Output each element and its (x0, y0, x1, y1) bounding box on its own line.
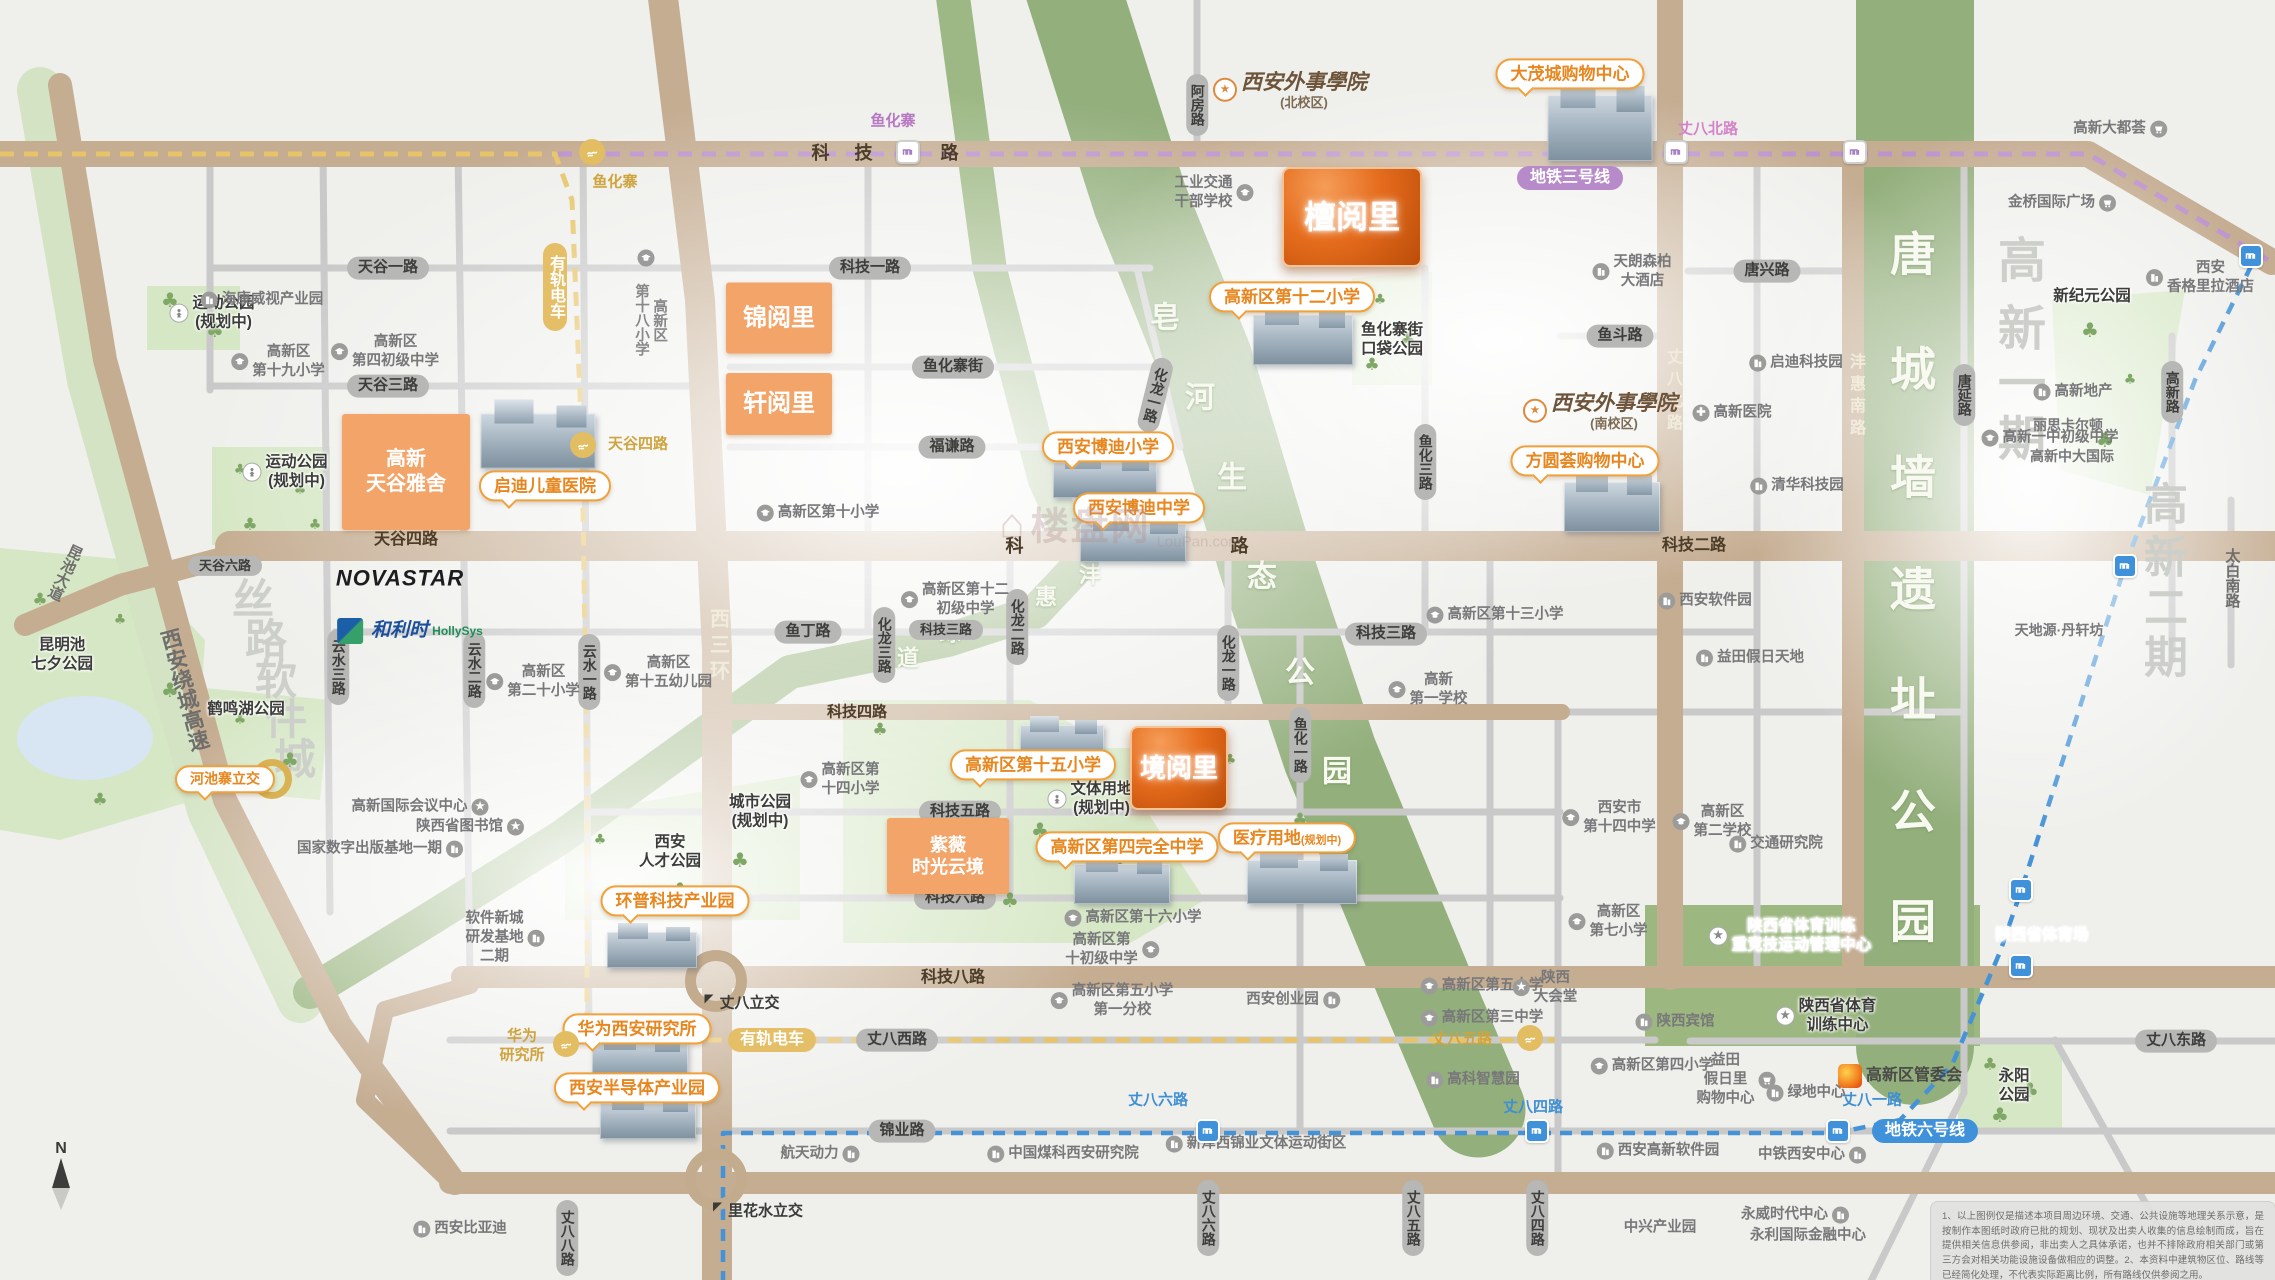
bigtext-gx1-2: 新 (1998, 300, 2046, 360)
starw-icon: ★ (1776, 1007, 1795, 1026)
station-yuhuazhai-metro: 鱼化寨 (870, 113, 915, 132)
road-keji3lu-east: 科技三路 (1345, 623, 1427, 646)
poi-qidi-childrens-hospital[interactable]: 启迪儿童医院 (479, 470, 611, 501)
poi-qidi-tech-park: 启迪科技园 (1749, 354, 1843, 373)
project-tianguyashe[interactable]: 高新天谷雅舍 (342, 414, 470, 530)
bldg-icon (1749, 355, 1766, 372)
poi-shanxi-dahuitang: ★陕西大会堂 (1513, 969, 1578, 1007)
bldg-huanpu (607, 932, 697, 968)
tree-icon: ♣ (309, 517, 322, 533)
poi-hechizhai-interchange[interactable]: 河池寨立交 (175, 765, 275, 793)
school-icon (331, 344, 348, 361)
road-zhangbadonglu: 丈八东路 (2135, 1030, 2217, 1053)
m6-station-zhangba1 (1826, 1119, 1850, 1143)
poi-huawei-institute[interactable]: 华为西安研究所 (563, 1013, 712, 1044)
road-afanglu: 阿房路 (1186, 74, 1208, 136)
road-kejixilu: 科 技 西 路 (811, 142, 968, 165)
park-sports2: 运动公园(规划中) (242, 453, 327, 492)
poi-gaoxin-admin: 高新区管委会 (1838, 1064, 1962, 1088)
park-pocket: 鱼化寨街口袋公园 (1361, 321, 1423, 360)
road-hualong2lu: 化龙二路 (1006, 589, 1028, 665)
bldg-bodi-middle (1080, 524, 1186, 562)
tram-station-zhangba5 (1517, 1025, 1543, 1051)
m6-station-1 (2239, 244, 2263, 268)
tram-badge-v: 有轨电车 (543, 243, 567, 331)
poi-school4: 高新区第四小学 (1591, 1057, 1714, 1076)
school-icon (901, 592, 918, 609)
school-icon (1569, 914, 1586, 931)
bldg-icon (1323, 992, 1340, 1009)
tree-icon: ♣ (594, 832, 607, 848)
bldg-icon (1832, 1207, 1849, 1224)
station-zhangba1-metro: 丈八一路 (1842, 1092, 1902, 1111)
hollysys-logo-icon (337, 618, 363, 644)
poi-xinzexi-street: 新泽西锦业文体运动街区 (1166, 1135, 1347, 1154)
m3-station-fenghuinan (1843, 140, 1867, 164)
bldg-icon (1166, 1136, 1183, 1153)
park-yongyang: 永阳公园 (1998, 1067, 2029, 1106)
bigtext-gx1-1: 高 (1998, 232, 2046, 292)
band-yuan2: 园 (1322, 753, 1352, 791)
tram-station-tiangu4 (570, 432, 596, 458)
station-tiangu4-tram: 天谷四路 (608, 436, 668, 455)
school-icon (1142, 942, 1159, 959)
poi-huanpu-tech-park[interactable]: 环普科技产业园 (601, 885, 750, 916)
m3-station-zhangbabei (1664, 140, 1688, 164)
poi-shanxi-library: 陕西省图书馆★ (416, 818, 524, 837)
m3-station-yuhuazhai (896, 140, 920, 164)
station-huawei-tram: 华为研究所 (499, 1027, 544, 1065)
poi-intl-conference: 高新国际会议中心★ (352, 798, 489, 817)
poi-damaocheng-mall[interactable]: 大茂城购物中心 (1496, 58, 1645, 89)
poi-hangtian-dongli: 航天动力 (781, 1145, 860, 1164)
poi-xian-middle14: 西安市第十四中学 (1562, 799, 1656, 837)
school-icon (1051, 993, 1068, 1010)
poi-zhongxing-park: 中兴产业园 (1624, 1219, 1697, 1238)
school-icon (1421, 978, 1438, 995)
poi-yongli-finance: 永利国际金融中心 (1750, 1227, 1866, 1246)
tree-icon: ♣ (872, 720, 887, 740)
bldg-icon (1658, 593, 1675, 610)
poi-semiconductor-park[interactable]: 西安半导体产业园 (554, 1072, 720, 1103)
poi-school14: 高新区第十四小学 (801, 761, 880, 799)
starw-icon: ★ (1709, 927, 1728, 946)
band-zhi: 址 (1890, 671, 1936, 729)
tree-icon: ♣ (2124, 372, 2137, 388)
poi-fangyuanhui-mall[interactable]: 方圆荟购物中心 (1511, 445, 1660, 476)
tree-icon: ♣ (2081, 318, 2099, 342)
road-zhangbabeilu-pink: 丈八北路 (1678, 121, 1738, 140)
road-zhangba4lu: 丈八四路 (1526, 1180, 1548, 1256)
road-keji3lu-west: 科技三路 (909, 620, 983, 640)
poi-shanxi-binguan: 陕西宾馆 (1636, 1013, 1715, 1032)
poi-ruanjianxincheng: 软件新城研发基地二期 (466, 910, 545, 967)
poi-gaoxin-dadu: 高新大都荟 (2073, 120, 2167, 139)
school-icon (231, 354, 248, 371)
poi-school10: 高新区第十小学 (757, 504, 880, 523)
band-gong2: 公 (1285, 654, 1315, 692)
m6-station-4 (2009, 954, 2033, 978)
poi-xian-byd: 西安比亚迪 (413, 1220, 507, 1239)
bldg-icon (413, 1221, 430, 1238)
bldg-fangyuanhui (1564, 482, 1660, 532)
station-zhangba4-metro: 丈八四路 (1503, 1099, 1563, 1118)
logo-hollysys: 和利时HollySys (337, 618, 483, 644)
poi-xian-chuangye-park: 西安创业园 (1246, 991, 1340, 1010)
road-keji8lu: 科技八路 (921, 968, 985, 988)
poi-school15-bubble[interactable]: 高新区第十五小学 (950, 749, 1116, 780)
poi-waishixueyuan-south: ★西安外事學院(南校区) (1523, 390, 1677, 433)
poi-school18: 高新区第十八小学 (632, 284, 668, 357)
project-jingyueli2[interactable]: 境阅里 (1130, 726, 1228, 810)
poi-jiaotong-institute: 交通研究院 (1729, 835, 1823, 854)
star-icon: ★ (1513, 980, 1530, 997)
poi-zhongtie-center: 中铁西安中心 (1758, 1146, 1866, 1165)
poi-gaoke-zhihui: 高科智慧园 (1426, 1071, 1520, 1090)
poi-tsinghua-tech-park: 清华科技园 (1750, 477, 1844, 496)
med-icon: ✚ (1693, 405, 1710, 422)
tree-icon: ♣ (731, 848, 749, 872)
band-cheng: 城 (1890, 341, 1936, 399)
bldg-icon (1696, 650, 1713, 667)
school-icon (638, 250, 655, 267)
logo-novastar: NOVASTAR (336, 564, 464, 592)
star-icon: ★ (472, 799, 489, 816)
tree-icon: ♣ (242, 515, 257, 535)
road-tiangu4lu-on-road: 天谷四路 (374, 530, 438, 550)
school-icon (1982, 430, 1999, 447)
poi-kindergarten15: 高新区第十五幼儿园 (604, 654, 712, 692)
park-talent: 西安人才公园 (639, 833, 701, 872)
poi-digital-publish-base: 国家数字出版基地一期 (297, 840, 463, 859)
road-zhangba8lu: 丈八八路 (556, 1200, 578, 1276)
poi-hikvision-park: 海康威视产业园 (201, 291, 324, 310)
school-icon (1673, 814, 1690, 831)
band-tang: 唐 (1890, 226, 1936, 284)
icon-school18 (638, 250, 659, 267)
bldg-icon (2034, 384, 2051, 401)
project-xuanyueli[interactable]: 轩阅里 (726, 373, 832, 435)
band-sheng: 生 (1217, 459, 1247, 497)
bldg-icon (1767, 1085, 1784, 1102)
school-icon (1427, 607, 1444, 624)
poi-gaoxin-first-school: 高新第一学校 (1389, 671, 1468, 709)
bldg-icon (201, 292, 218, 309)
compass-n-label: N (55, 1140, 67, 1158)
project-ziweishiguang[interactable]: 紫薇时光云境 (887, 818, 1009, 894)
metro6-badge: 地铁六号线 (1872, 1119, 1978, 1143)
map-canvas[interactable]: ⌂ 楼盘网 LouPan.com 1、以上图例仅是描述本项目周边环境、交通、公共… (0, 0, 2275, 1280)
poi-school19: 高新区第十九小学 (231, 343, 325, 381)
road-tiangu1lu: 天谷一路 (347, 257, 429, 280)
project-jinyueli[interactable]: 锦阅里 (726, 283, 832, 354)
bldg-icon (1597, 1143, 1614, 1160)
poi-yongwei-center: 永威时代中心 (1741, 1206, 1849, 1225)
star-icon: ★ (1213, 78, 1237, 102)
poi-gaoxin-hospital: ✚高新医院 (1693, 404, 1772, 423)
road-keji4lu: 科技四路 (827, 704, 887, 723)
band-zao: 皂 (1150, 299, 1180, 337)
poi-waishixueyuan-north: ★西安外事學院(北校区) (1213, 69, 1367, 112)
park-city: 城市公园(规划中) (729, 793, 791, 832)
road-yuhuazhaijie: 鱼化寨街 (912, 356, 994, 379)
road-fenghuinanlu: 沣惠南路 (1845, 353, 1865, 441)
band-he: 河 (1185, 379, 1215, 417)
poi-school4-complete[interactable]: 高新区第四完全中学 (1036, 831, 1219, 862)
band-yi: 遗 (1890, 561, 1936, 619)
poi-sports-training: ★陕西省体育训练重竞技运动管理中心 (1709, 917, 1872, 956)
band-feng: 沣 (1079, 561, 1101, 589)
road-zhangba6lu: 丈八六路 (1197, 1180, 1219, 1256)
bldg-icon (1849, 1147, 1866, 1164)
m6-station-zhangba6 (1196, 1119, 1220, 1143)
star-icon: ★ (507, 819, 524, 836)
school-icon (486, 674, 503, 691)
poi-school13: 高新区第十三小学 (1427, 606, 1564, 625)
park-kunmingchi: 昆明池七夕公园 (31, 636, 93, 675)
poi-school16: 高新区第十六小学 (1065, 909, 1202, 928)
bldg-semicon (600, 1103, 696, 1139)
poi-meikeyuan: 中国煤科西安研究院 (987, 1145, 1139, 1164)
road-keji1lu: 科技一路 (829, 257, 911, 280)
poi-middle10: 高新区第十初级中学 (1065, 931, 1159, 969)
band-hui: 惠 (1035, 583, 1057, 611)
school-icon (801, 772, 818, 789)
poi-middle4: 高新区第四初级中学 (331, 333, 439, 371)
bldg-icon (987, 1146, 1004, 1163)
poi-sports-center: ★陕西省体育训练中心 (1776, 997, 1877, 1036)
road-tiangu6lu: 天谷六路 (188, 556, 262, 576)
school-icon (1591, 1058, 1608, 1075)
road-tiangu3lu: 天谷三路 (347, 375, 429, 398)
project-tanyueli[interactable]: 檀阅里 (1282, 167, 1422, 267)
band-yuan: 园 (1890, 893, 1936, 951)
school-icon (1389, 682, 1406, 699)
school-icon (604, 665, 621, 682)
tree-icon: ♣ (1374, 292, 1387, 308)
shop-icon (2099, 195, 2116, 212)
bldg-icon (1750, 478, 1767, 495)
bigtext-gx2-3: 二 (2144, 581, 2188, 636)
park-newera: 新纪元公园 (2053, 286, 2131, 305)
person-icon (169, 304, 188, 323)
poi-greenland-center: 绿地中心 (1767, 1084, 1846, 1103)
compass-needle-north (52, 1158, 70, 1188)
star-icon: ★ (1523, 399, 1547, 423)
poi-yitian-mall: 益田假日里购物中心 (1697, 1052, 1776, 1109)
road-zhangba5lu: 丈八五路 (1402, 1180, 1424, 1256)
poi-school7: 高新区第七小学 (1569, 903, 1648, 941)
road-tangxinglu: 唐兴路 (1733, 260, 1800, 283)
band-gong: 公 (1890, 783, 1936, 841)
poi-xian-software-park: 西安软件园 (1658, 592, 1752, 611)
flag-lihuashui-interchange: 里花水立交 (713, 1203, 803, 1222)
road-zhangbaxilu: 丈八西路 (856, 1029, 938, 1052)
bldg-school12 (1253, 315, 1353, 365)
poi-bodi-middle[interactable]: 西安博迪中学 (1073, 492, 1205, 523)
bldg-medical (1247, 860, 1357, 904)
poi-shangrila: 西安香格里拉酒店 (2146, 259, 2254, 297)
compass-needle-south (52, 1188, 70, 1210)
road-yudoulu: 鱼斗路 (1586, 325, 1653, 348)
lake (17, 696, 153, 780)
road-tangyanlu: 唐延路 (1953, 364, 1975, 426)
poi-gaoxin-dichan: 高新地产 (2034, 383, 2113, 402)
poi-yitian-tiandi: 益田假日天地 (1696, 649, 1804, 668)
road-taibainanlu: 太白南路 (2222, 548, 2241, 608)
road-yunshui1lu: 云水一路 (578, 634, 600, 710)
poi-tianlang-hotel: 天朗森柏大酒店 (1593, 253, 1672, 291)
band-dao: 道 (897, 644, 919, 672)
m6-station-zhangba4 (1525, 1119, 1549, 1143)
poi-middle12: 高新区第十二初级中学 (901, 581, 1009, 619)
poi-middle3: 高新区第三中学 (1421, 1009, 1544, 1028)
poi-sports-stadium: 陕西省体育场 (1995, 925, 2088, 944)
bldg-damaocheng (1548, 95, 1653, 161)
road-hualong3lu: 化龙三路 (873, 607, 895, 683)
tree-icon: ♣ (92, 790, 107, 810)
station-zhangba6-metro: 丈八六路 (1128, 1092, 1188, 1111)
bldg-icon (1636, 1014, 1653, 1031)
poi-school12-bubble[interactable]: 高新区第十二小学 (1209, 281, 1375, 312)
person-icon (242, 463, 261, 482)
road-yudinglu: 鱼丁路 (774, 621, 841, 644)
road-fuqianlu: 福谦路 (918, 436, 985, 459)
road-keji2lu-east: 科技二路 (1662, 536, 1726, 556)
bldg-icon (528, 930, 545, 947)
poi-bodi-primary[interactable]: 西安博迪小学 (1042, 431, 1174, 462)
disclaimer-note: 1、以上图例仅是描述本项目周边环境、交通、公共设施等地理关系示意，是按制作本图纸… (1930, 1201, 2275, 1280)
compass: N (52, 1140, 70, 1210)
bldg-icon (1593, 264, 1610, 281)
tram-badge-h: 有轨电车 (728, 1028, 816, 1052)
poi-school5-branch: 高新区第五小学第一分校 (1051, 982, 1174, 1020)
shop-icon (2150, 121, 2167, 138)
poi-jinqiao-plaza: 金桥国际广场 (2008, 194, 2116, 213)
road-yuhua1lu: 鱼化一路 (1289, 707, 1311, 783)
flag-zhangba-interchange: 丈八立交 (704, 995, 779, 1014)
tree-icon: ♣ (1991, 1103, 2009, 1127)
lihuashui-interchange-circle (685, 1148, 747, 1210)
person-icon (1047, 790, 1066, 809)
poi-school20: 高新区第二十小学 (486, 663, 580, 701)
m6-station-3 (2009, 878, 2033, 902)
tram-station-yuhuazhai (579, 139, 605, 165)
tree-icon: ♣ (1982, 1055, 1997, 1075)
station-yuhuazhai-tram: 鱼化寨 (592, 174, 637, 193)
tram-station-huawei (553, 1031, 579, 1057)
bldg-icon (843, 1146, 860, 1163)
school-icon (757, 505, 774, 522)
gaoxin-admin-logo-icon (1838, 1064, 1862, 1088)
tree-icon: ♣ (114, 612, 127, 628)
bigtext-gx2-2: 新 (2144, 531, 2188, 586)
poi-tiandiyuan: 天地源·丹轩坊 (2015, 621, 2104, 639)
bigtext-gx2-1: 高 (2144, 478, 2188, 533)
poi-gaoxin-software-park: 西安高新软件园 (1597, 1142, 1720, 1161)
road-jinyelu: 锦业路 (868, 1120, 935, 1143)
bldg-school4comp (1074, 864, 1170, 904)
poi-zhongda-intl: 高新中大国际 (2030, 447, 2114, 465)
band-qiang: 墙 (1890, 449, 1936, 507)
bldg-icon (1729, 836, 1746, 853)
school-icon (1237, 185, 1254, 202)
school-icon (1065, 910, 1082, 927)
bldg-icon (2146, 270, 2163, 287)
road-hualong1lu-south: 化龙一路 (1217, 625, 1239, 701)
m6-station-2 (2113, 554, 2137, 578)
metro3-badge: 地铁三号线 (1517, 166, 1623, 190)
park-heminghu: 鹤鸣湖公园 (207, 699, 285, 718)
school-icon (1421, 1010, 1438, 1027)
school-icon (1562, 810, 1579, 827)
bldg-icon (446, 841, 463, 858)
station-zhangba5-tram: 丈八五路 (1432, 1031, 1492, 1050)
road-gaoxinlu: 高新路 (2161, 361, 2183, 423)
band-tai: 态 (1247, 558, 1277, 596)
poi-gongye-jiaotong-school: 工业交通干部学校 (1175, 174, 1254, 212)
bigtext-gx2-4: 期 (2144, 631, 2188, 686)
poi-medical-land[interactable]: 医疗用地(规划中) (1218, 822, 1356, 853)
poi-ritz-carlton: 丽思卡尔顿 (2033, 416, 2103, 434)
bldg-icon (1426, 1072, 1443, 1089)
road-yuhua3lu: 鱼化三路 (1414, 424, 1436, 500)
park-wenti: 文体用地(规划中) (1047, 780, 1132, 819)
